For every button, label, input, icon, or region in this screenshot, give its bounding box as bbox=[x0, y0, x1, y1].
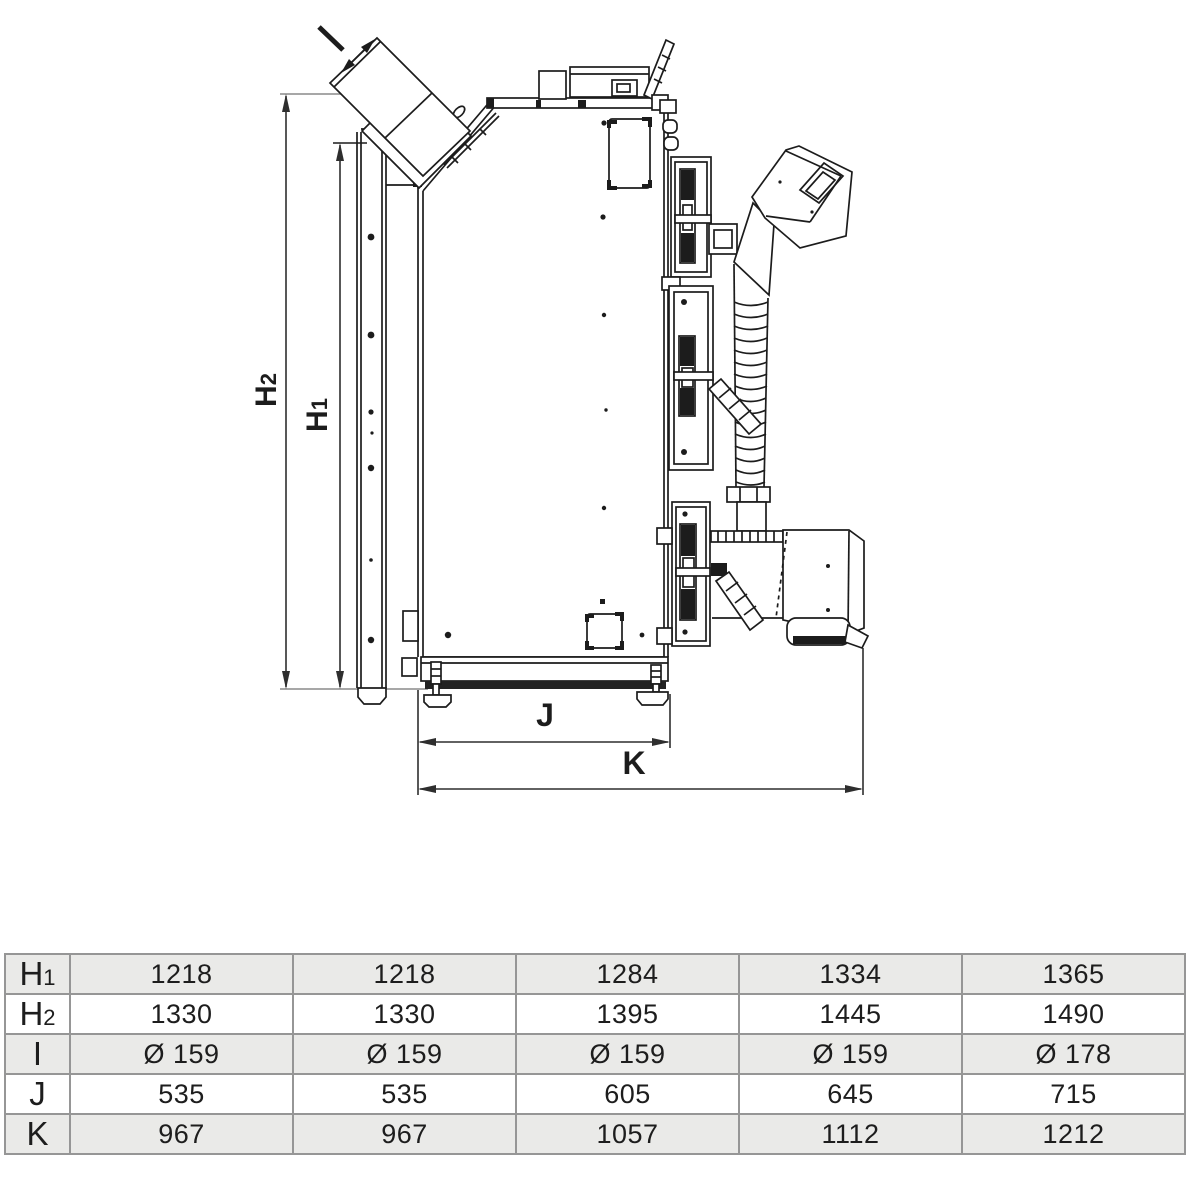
table-cell: 1445 bbox=[739, 994, 962, 1034]
table-cell: 535 bbox=[293, 1074, 516, 1114]
row-label-j: J bbox=[5, 1074, 70, 1114]
table-cell: 645 bbox=[739, 1074, 962, 1114]
table-cell: Ø 159 bbox=[516, 1034, 739, 1074]
sensor-box bbox=[539, 71, 566, 99]
pellet-burner bbox=[711, 530, 868, 648]
table-row-i: I Ø 159 Ø 159 Ø 159 Ø 159 Ø 178 bbox=[5, 1034, 1185, 1074]
dimension-h2-label: H2 bbox=[250, 373, 283, 407]
feeder-motor bbox=[734, 146, 852, 295]
table-cell: 1218 bbox=[293, 954, 516, 994]
table-cell: 1334 bbox=[739, 954, 962, 994]
row-label-k: K bbox=[5, 1114, 70, 1154]
ash-door bbox=[657, 502, 710, 646]
leader-line bbox=[319, 27, 343, 50]
table-cell: 1490 bbox=[962, 994, 1185, 1034]
upper-door bbox=[671, 157, 711, 277]
dimension-j-label: J bbox=[536, 697, 554, 733]
table-cell: 1112 bbox=[739, 1114, 962, 1154]
table-cell: 1330 bbox=[70, 994, 293, 1034]
table-row-h1: H1 1218 1218 1284 1334 1365 bbox=[5, 954, 1185, 994]
table-cell: Ø 178 bbox=[962, 1034, 1185, 1074]
lower-door bbox=[669, 286, 713, 470]
boiler-dimension-sheet: H2 H1 J K bbox=[0, 0, 1200, 1200]
table-row-h2: H2 1330 1330 1395 1445 1490 bbox=[5, 994, 1185, 1034]
burner-tube bbox=[716, 572, 763, 630]
table-cell: 1284 bbox=[516, 954, 739, 994]
row-label-h1: H1 bbox=[5, 954, 70, 994]
panel-latch bbox=[612, 80, 637, 96]
hose-clamp bbox=[727, 487, 770, 502]
table-cell: Ø 159 bbox=[739, 1034, 962, 1074]
table-cell: 715 bbox=[962, 1074, 1185, 1114]
dimension-table: H1 1218 1218 1284 1334 1365 H2 1330 1330… bbox=[4, 953, 1186, 1155]
table-row-j: J 535 535 605 645 715 bbox=[5, 1074, 1185, 1114]
table-row-k: K 967 967 1057 1112 1212 bbox=[5, 1114, 1185, 1154]
table-cell: 535 bbox=[70, 1074, 293, 1114]
table-cell: 1212 bbox=[962, 1114, 1185, 1154]
pellet-feeder bbox=[709, 146, 852, 531]
row-label-h2: H2 bbox=[5, 994, 70, 1034]
boiler-body bbox=[402, 98, 668, 676]
boiler-technical-drawing: H2 H1 J K bbox=[0, 0, 1200, 950]
table-cell: 1218 bbox=[70, 954, 293, 994]
table-cell: 967 bbox=[70, 1114, 293, 1154]
flue-pipe bbox=[319, 27, 471, 188]
table-cell: 1395 bbox=[516, 994, 739, 1034]
table-cell: Ø 159 bbox=[293, 1034, 516, 1074]
table-cell: 1365 bbox=[962, 954, 1185, 994]
dimension-k-label: K bbox=[622, 745, 645, 781]
table-cell: 1330 bbox=[293, 994, 516, 1034]
row-label-i: I bbox=[5, 1034, 70, 1074]
table-cell: 967 bbox=[293, 1114, 516, 1154]
dimension-h2: H2 bbox=[250, 94, 290, 689]
dimension-h1-label: H1 bbox=[301, 398, 334, 432]
table-cell: 1057 bbox=[516, 1114, 739, 1154]
table-cell: 605 bbox=[516, 1074, 739, 1114]
table-cell: Ø 159 bbox=[70, 1034, 293, 1074]
